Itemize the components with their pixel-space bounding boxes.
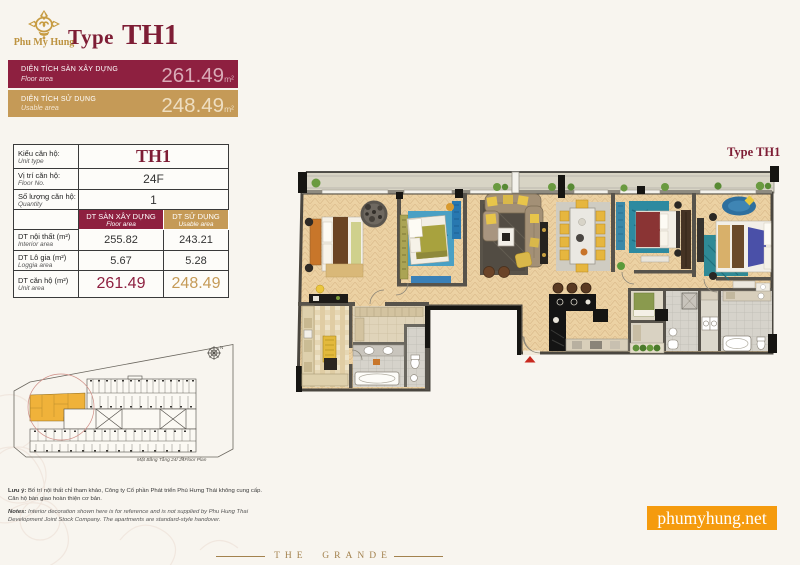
svg-text:Phu My Hung: Phu My Hung [14, 37, 75, 48]
svg-text:Floor Plan: Floor Plan [185, 457, 207, 463]
svg-text:Mặt Bằng Tầng 24/ 24: Mặt Bằng Tầng 24/ 24 [137, 456, 185, 463]
svg-text:N: N [220, 345, 223, 350]
svg-text:th: th [181, 456, 184, 460]
